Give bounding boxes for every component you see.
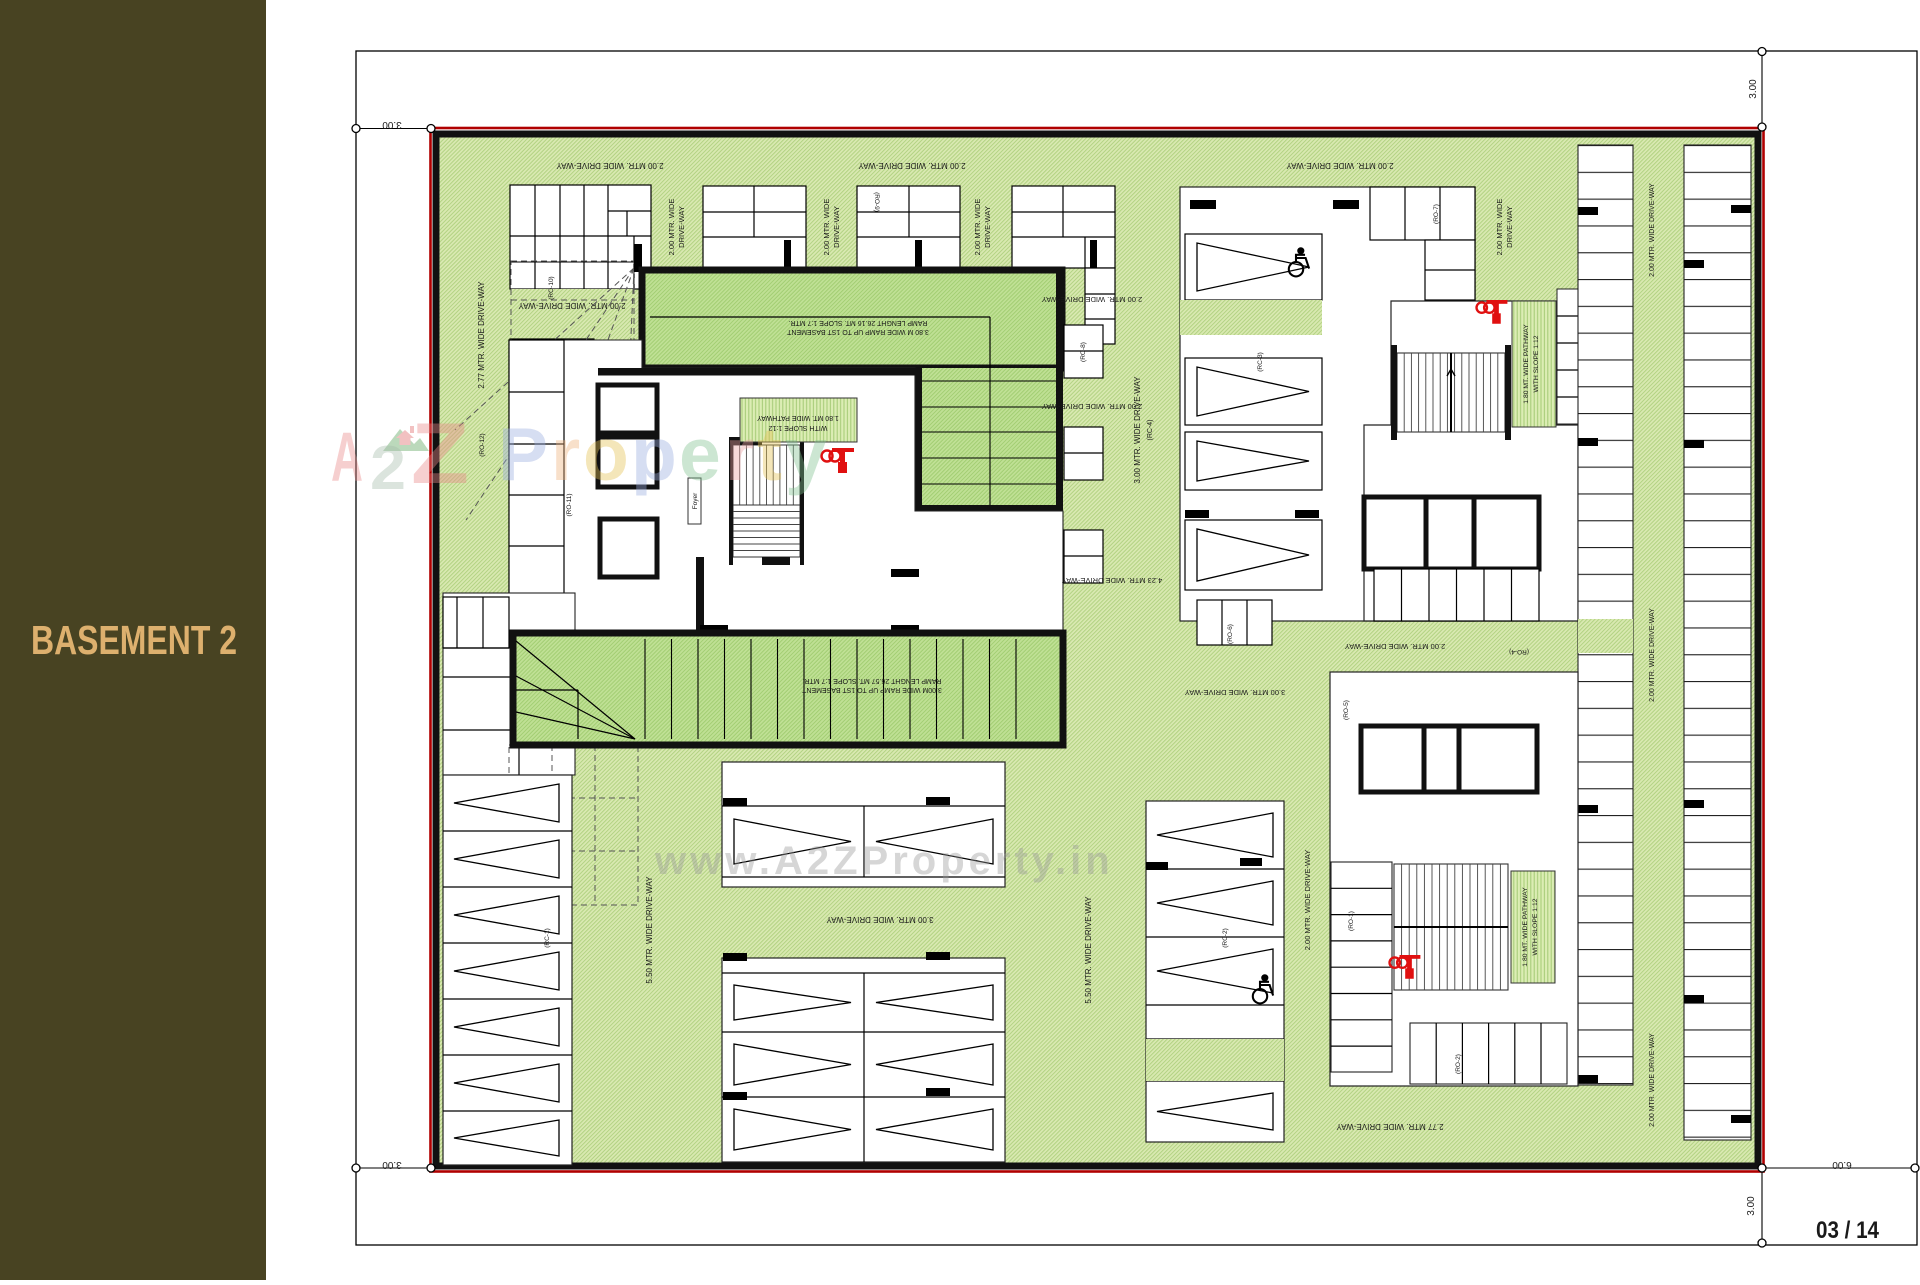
svg-text:2.00 MTR. WIDE DRIVE-WAY: 2.00 MTR. WIDE DRIVE-WAY	[1303, 850, 1312, 950]
svg-text:2.00 MTR. WIDE: 2.00 MTR. WIDE	[1495, 199, 1504, 256]
svg-text:5.50 MTR. WIDE DRIVE-WAY: 5.50 MTR. WIDE DRIVE-WAY	[645, 876, 654, 984]
svg-text:DRIVE-WAY: DRIVE-WAY	[1505, 206, 1514, 248]
svg-text:3.00 MTR. WIDE DRIVE-WAY: 3.00 MTR. WIDE DRIVE-WAY	[826, 915, 934, 924]
svg-text:2.00 MTR. WIDE DRIVE-WAY: 2.00 MTR. WIDE DRIVE-WAY	[858, 161, 966, 170]
svg-text:WITH SLOPE 1:12: WITH SLOPE 1:12	[1532, 898, 1539, 955]
svg-text:2.00 MTR. WIDE DRIVE-WAY: 2.00 MTR. WIDE DRIVE-WAY	[1042, 402, 1142, 411]
svg-text:BASEMENT 2: BASEMENT 2	[31, 617, 237, 663]
svg-text:Z: Z	[411, 406, 469, 502]
svg-text:(RO-11): (RO-11)	[566, 494, 573, 517]
svg-text:p: p	[631, 412, 677, 496]
svg-text:1.80 MT. WIDE PATHWAY: 1.80 MT. WIDE PATHWAY	[1522, 887, 1529, 967]
svg-text:2.00 MTR. WIDE DRIVE-WAY: 2.00 MTR. WIDE DRIVE-WAY	[556, 161, 664, 170]
svg-text:2: 2	[370, 434, 406, 503]
svg-text:www.A2ZProperty.in: www.A2ZProperty.in	[654, 839, 1114, 883]
svg-text:2.00 MTR. WIDE DRIVE-WAY: 2.00 MTR. WIDE DRIVE-WAY	[1286, 161, 1394, 170]
svg-text:(RC-4): (RC-4)	[1147, 420, 1154, 441]
svg-text:2.77 MTR. WIDE DRIVE-WAY: 2.77 MTR. WIDE DRIVE-WAY	[477, 281, 486, 389]
svg-text:(RO-9): (RO-9)	[873, 192, 880, 212]
svg-text:(RO-4): (RO-4)	[1509, 648, 1529, 655]
svg-text:DRIVE-WAY: DRIVE-WAY	[832, 206, 841, 248]
svg-text:3.00: 3.00	[1746, 1196, 1757, 1216]
svg-text:2.00 MTR. WIDE DRIVE-WAY: 2.00 MTR. WIDE DRIVE-WAY	[1345, 642, 1445, 651]
svg-text:(RC-1): (RC-1)	[544, 928, 551, 948]
svg-text:3.00: 3.00	[1748, 79, 1759, 99]
svg-text:3.00: 3.00	[382, 1159, 402, 1170]
svg-text:2.00 MTR. WIDE: 2.00 MTR. WIDE	[667, 199, 676, 256]
svg-text:A: A	[331, 418, 363, 496]
svg-text:r: r	[725, 412, 754, 496]
svg-text:(RO-12): (RO-12)	[479, 433, 486, 456]
svg-text:DRIVE-WAY: DRIVE-WAY	[983, 206, 992, 248]
svg-text:(RC-2): (RC-2)	[1222, 928, 1229, 948]
svg-text:(RO-5): (RO-5)	[1343, 700, 1350, 720]
svg-text:2.00 MTR. WIDE DRIVE-WAY: 2.00 MTR. WIDE DRIVE-WAY	[1042, 295, 1142, 304]
svg-text:4.23 MTR. WIDE DRIVE-WAY: 4.23 MTR. WIDE DRIVE-WAY	[1062, 576, 1162, 585]
svg-text:2.00 MTR. WIDE DRIVE-WAY: 2.00 MTR. WIDE DRIVE-WAY	[1649, 608, 1656, 702]
svg-text:o: o	[583, 412, 629, 496]
svg-text:t: t	[757, 412, 782, 496]
svg-text:(RC-3): (RC-3)	[1257, 352, 1264, 372]
svg-text:(RO-10): (RO-10)	[548, 276, 555, 299]
svg-text:(RO-1): (RO-1)	[1348, 911, 1355, 931]
svg-text:03 / 14: 03 / 14	[1816, 1217, 1880, 1244]
svg-text:1.80 MT. WIDE PATHWAY: 1.80 MT. WIDE PATHWAY	[1523, 324, 1530, 404]
svg-text:6.00: 6.00	[1832, 1159, 1852, 1170]
svg-text:3.00M WIDE RAMP UP TO 1ST BASE: 3.00M WIDE RAMP UP TO 1ST BASEMENT	[801, 686, 942, 693]
svg-text:DRIVE-WAY: DRIVE-WAY	[677, 206, 686, 248]
svg-text:3.00 MTR. WIDE DRIVE-WAY: 3.00 MTR. WIDE DRIVE-WAY	[1185, 688, 1285, 697]
svg-text:2.00 MTR. WIDE: 2.00 MTR. WIDE	[973, 199, 982, 256]
svg-text:2.00 MTR. WIDE DRIVE-WAY: 2.00 MTR. WIDE DRIVE-WAY	[1649, 183, 1656, 277]
svg-text:(RO-6): (RO-6)	[1227, 624, 1234, 644]
svg-text:3.00 MTR. WIDE DRIVE-WAY: 3.00 MTR. WIDE DRIVE-WAY	[1133, 376, 1142, 484]
svg-text:P: P	[498, 412, 548, 496]
svg-text:RAMP LENGHT 26.16 MT. SLOPE 1:: RAMP LENGHT 26.16 MT. SLOPE 1:7 MTR.	[788, 319, 927, 326]
svg-text:2.00 MTR. WIDE DRIVE-WAY: 2.00 MTR. WIDE DRIVE-WAY	[1649, 1033, 1656, 1127]
svg-text:(RO-8): (RO-8)	[1080, 342, 1087, 362]
svg-text:e: e	[679, 412, 721, 496]
svg-text:r: r	[551, 412, 580, 496]
svg-text:3.00: 3.00	[382, 119, 402, 130]
svg-text:2.00 MTR. WIDE: 2.00 MTR. WIDE	[822, 199, 831, 256]
svg-text:RAMP LENGHT 26.57 MT. SLOPE 1:: RAMP LENGHT 26.57 MT. SLOPE 1:7 MTR.	[802, 677, 941, 684]
svg-text:(RO-7): (RO-7)	[1433, 204, 1440, 224]
svg-text:(RO-2): (RO-2)	[1455, 1054, 1462, 1074]
svg-text:3.80 M WIDE RAMP UP TO 1ST BAS: 3.80 M WIDE RAMP UP TO 1ST BASEMENT	[786, 328, 928, 335]
svg-text:WITH SLOPE 1:12: WITH SLOPE 1:12	[1533, 335, 1540, 392]
svg-text:2.77 MTR. WIDE DRIVE-WAY: 2.77 MTR. WIDE DRIVE-WAY	[1336, 1122, 1444, 1131]
svg-text:5.50 MTR. WIDE DRIVE-WAY: 5.50 MTR. WIDE DRIVE-WAY	[1084, 896, 1093, 1004]
svg-text:y: y	[785, 412, 827, 496]
